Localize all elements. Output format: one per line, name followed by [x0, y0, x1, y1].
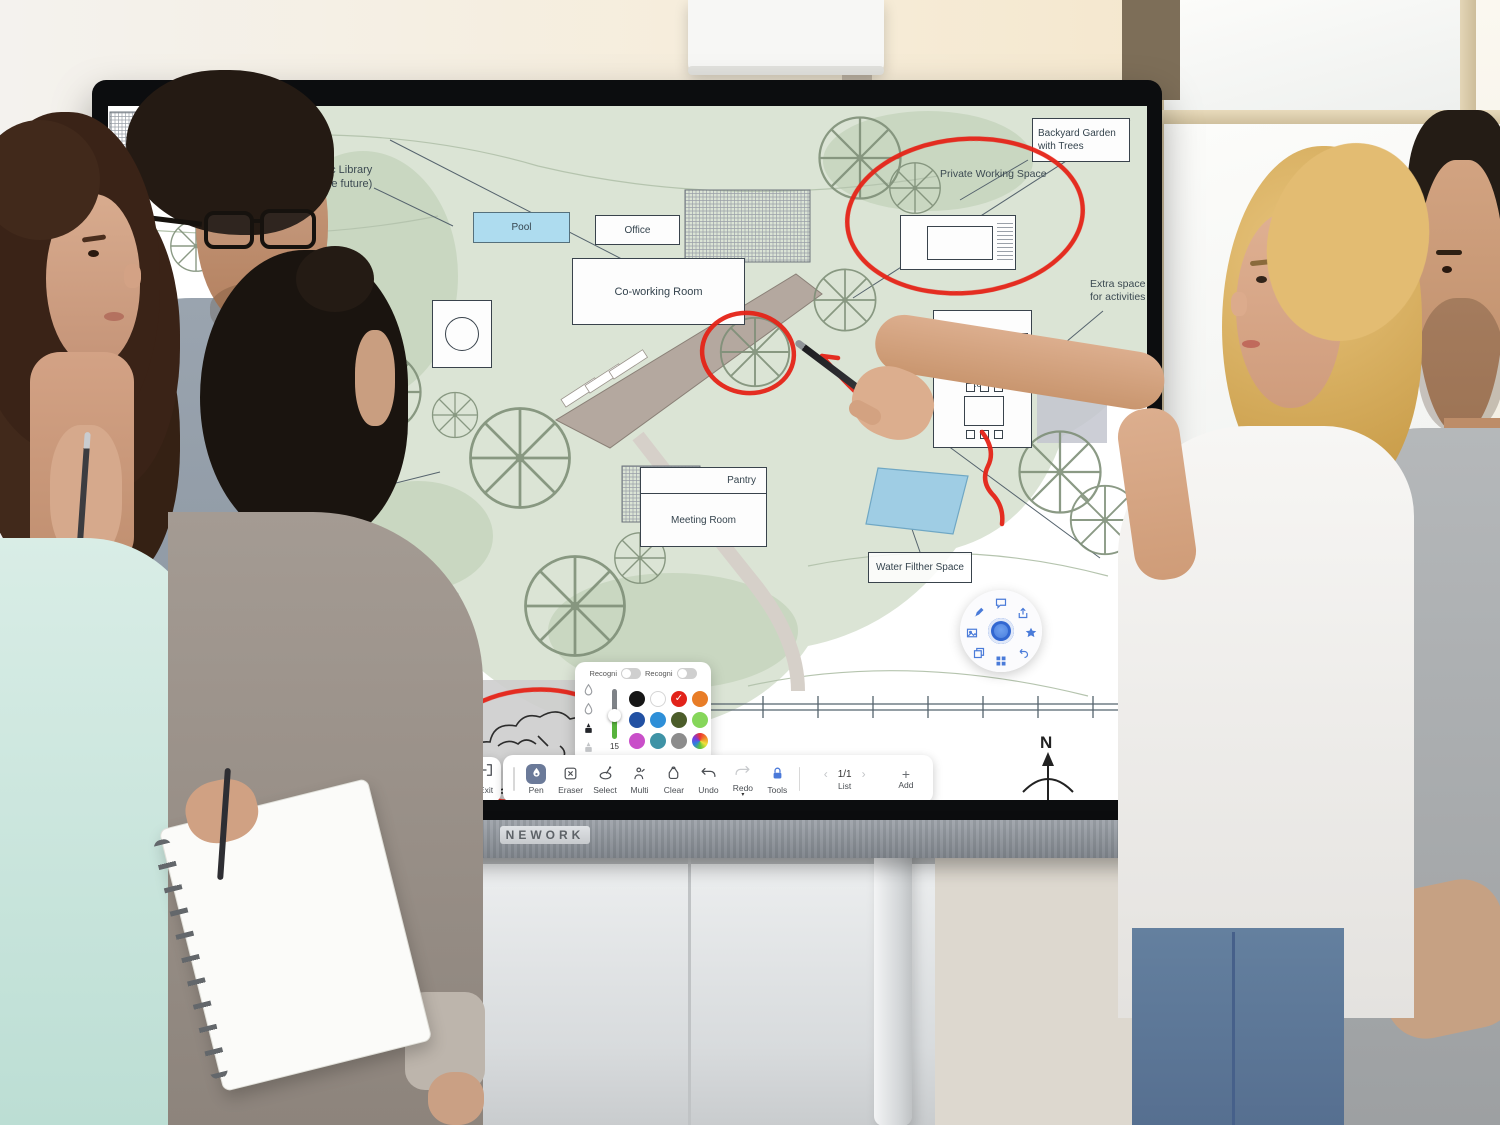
main-toolbar: Pen Eraser Select Multi Clear Undo	[503, 755, 933, 800]
multi-tool-button[interactable]: Multi	[622, 764, 656, 795]
recognize-toggle-2[interactable]	[677, 668, 697, 679]
color-swatch[interactable]	[629, 712, 645, 728]
widget-icon-share[interactable]	[1016, 606, 1030, 620]
color-swatch[interactable]	[629, 733, 645, 749]
select-tool-button[interactable]: Select	[588, 764, 622, 795]
widget-icon-undo[interactable]	[1016, 646, 1030, 660]
scene: NEWORK	[0, 0, 1500, 1125]
check-icon: ✓	[671, 691, 687, 707]
redo-caret: ▾	[741, 794, 744, 797]
multi-touch-icon	[630, 764, 650, 784]
color-swatches: ✓	[629, 691, 708, 749]
page-next-button[interactable]: ›	[862, 767, 866, 781]
clear-bag-icon	[664, 764, 684, 784]
color-swatch[interactable]	[692, 712, 708, 728]
jeans	[1132, 928, 1344, 1125]
color-swatch[interactable]	[629, 691, 645, 707]
clear-tool-button[interactable]: Clear	[657, 764, 691, 795]
pen-tool-button[interactable]: Pen	[519, 764, 553, 795]
eraser-tool-button[interactable]: Eraser	[553, 764, 587, 795]
roller-blind-bar	[688, 66, 884, 75]
color-swatch-rainbow[interactable]	[692, 733, 708, 749]
display-stand-seam	[688, 856, 691, 1125]
add-page-button[interactable]: + Add	[885, 768, 927, 790]
widget-icon-apps[interactable]	[994, 654, 1008, 668]
widget-icon-chat[interactable]	[994, 596, 1008, 610]
brush-type-drop-icon[interactable]	[582, 702, 595, 718]
widget-center-gear[interactable]	[988, 618, 1014, 644]
pen-size-slider[interactable]	[612, 689, 617, 739]
display-stand	[455, 856, 935, 1125]
color-swatch[interactable]	[692, 691, 708, 707]
page-prev-button[interactable]: ‹	[824, 767, 828, 781]
color-swatch[interactable]	[671, 733, 687, 749]
ink-bottle-dark-icon[interactable]	[582, 721, 595, 737]
lasso-select-icon	[595, 764, 615, 784]
recognize-toggle-label: Recogni	[645, 669, 673, 678]
list-label[interactable]: List	[838, 781, 851, 791]
window-pane	[1164, 0, 1460, 110]
eraser-icon	[561, 764, 581, 784]
widget-icon-pen[interactable]	[972, 606, 986, 620]
tools-button[interactable]: Tools	[760, 764, 794, 795]
undo-button[interactable]: Undo	[691, 764, 725, 795]
roller-blind	[688, 0, 884, 74]
recognize-toggle-label: Recogni	[589, 669, 617, 678]
color-swatch[interactable]	[650, 712, 666, 728]
pen-size-value: 15	[610, 742, 619, 751]
pen-type-drop-icon[interactable]	[582, 683, 595, 699]
color-swatch[interactable]	[650, 733, 666, 749]
widget-icon-star[interactable]	[1024, 626, 1038, 640]
plus-icon: +	[902, 768, 910, 780]
compass-n-label: N	[1040, 733, 1052, 752]
redo-arrow-icon	[733, 762, 753, 782]
page-pager: ‹ 1/1 › List	[804, 767, 884, 791]
color-swatch[interactable]	[671, 712, 687, 728]
lock-tools-icon	[767, 764, 787, 784]
pen-nib-icon	[526, 764, 546, 784]
ink-bottle-light-icon[interactable]	[582, 740, 595, 756]
widget-icon-copy[interactable]	[972, 646, 986, 660]
color-swatch-selected[interactable]: ✓	[671, 691, 687, 707]
undo-arrow-icon	[698, 764, 718, 784]
widget-icon-image[interactable]	[965, 626, 979, 640]
color-swatch[interactable]	[650, 691, 666, 707]
device-logo: NEWORK	[500, 826, 590, 844]
recognize-toggle-1[interactable]	[621, 668, 641, 679]
redo-button[interactable]: Redo ▾	[726, 762, 760, 797]
glasses	[196, 205, 322, 255]
stand-pole	[874, 826, 912, 1125]
pen-settings-popup: Recogni Recogni 15	[575, 662, 711, 764]
floating-assist-widget[interactable]	[960, 590, 1042, 672]
page-indicator: 1/1	[838, 769, 852, 780]
